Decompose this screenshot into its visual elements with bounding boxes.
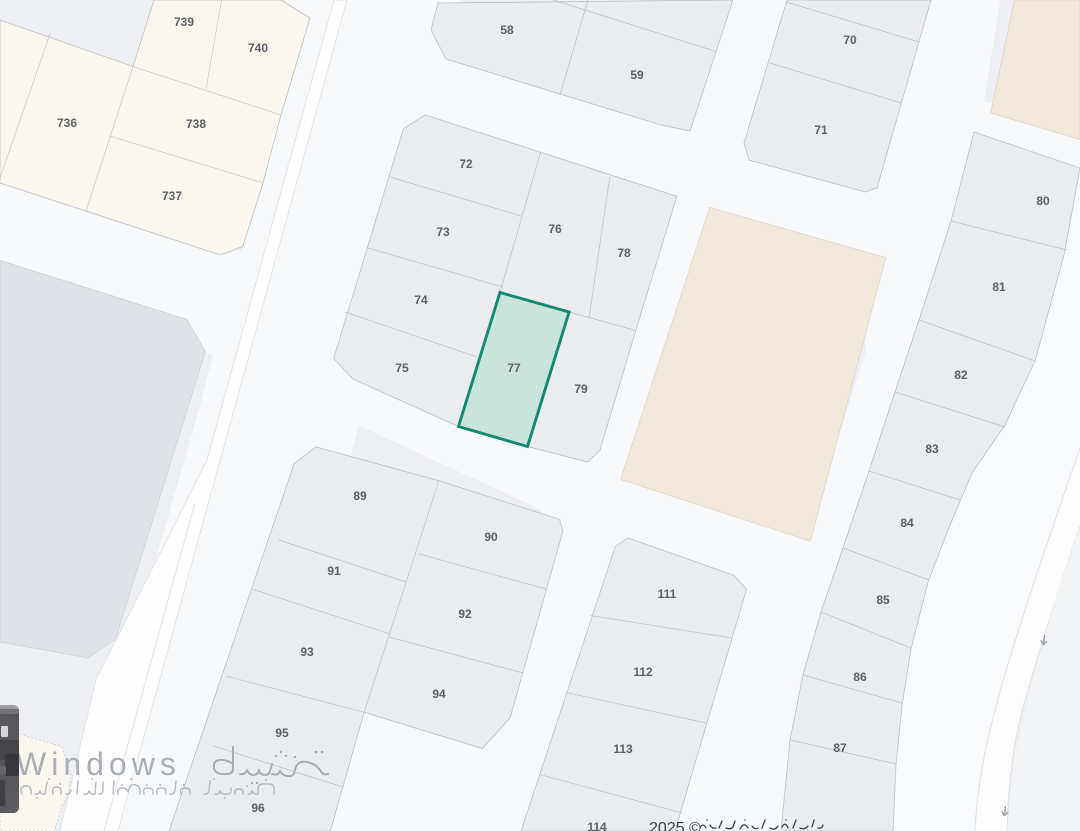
svg-text:74: 74 [414, 293, 428, 307]
svg-text:59: 59 [630, 68, 644, 82]
svg-text:90: 90 [484, 530, 498, 544]
svg-text:95: 95 [275, 726, 289, 740]
svg-text:82: 82 [954, 368, 968, 382]
svg-text:75: 75 [395, 361, 409, 375]
svg-text:70: 70 [843, 33, 857, 47]
svg-text:85: 85 [876, 593, 890, 607]
svg-text:83: 83 [925, 442, 939, 456]
svg-text:736: 736 [57, 116, 77, 130]
svg-text:113: 113 [613, 742, 633, 756]
svg-text:72: 72 [459, 157, 473, 171]
svg-text:737: 737 [162, 189, 182, 203]
svg-text:739: 739 [174, 15, 194, 29]
svg-text:80: 80 [1036, 194, 1050, 208]
svg-text:86: 86 [853, 670, 867, 684]
svg-text:Windows: Windows [16, 746, 181, 782]
svg-text:79: 79 [574, 382, 588, 396]
svg-text:93: 93 [300, 645, 314, 659]
svg-text:114: 114 [587, 820, 607, 831]
svg-text:87: 87 [833, 741, 847, 755]
svg-text:71: 71 [814, 123, 828, 137]
svg-text:91: 91 [327, 564, 341, 578]
svg-text:112: 112 [633, 665, 653, 679]
svg-text:111: 111 [658, 587, 677, 601]
svg-text:58: 58 [500, 23, 514, 37]
svg-text:81: 81 [992, 280, 1006, 294]
svg-text:94: 94 [432, 687, 446, 701]
svg-text:77: 77 [507, 361, 521, 375]
svg-text:740: 740 [248, 41, 268, 55]
svg-text:96: 96 [251, 801, 265, 815]
svg-text:76: 76 [548, 222, 562, 236]
svg-text:92: 92 [458, 607, 472, 621]
svg-text:73: 73 [436, 225, 450, 239]
svg-text:738: 738 [186, 117, 206, 131]
svg-text:89: 89 [353, 489, 367, 503]
svg-text:2025 ©: 2025 © [649, 820, 701, 831]
svg-text:78: 78 [617, 246, 631, 260]
svg-text:84: 84 [900, 516, 914, 530]
